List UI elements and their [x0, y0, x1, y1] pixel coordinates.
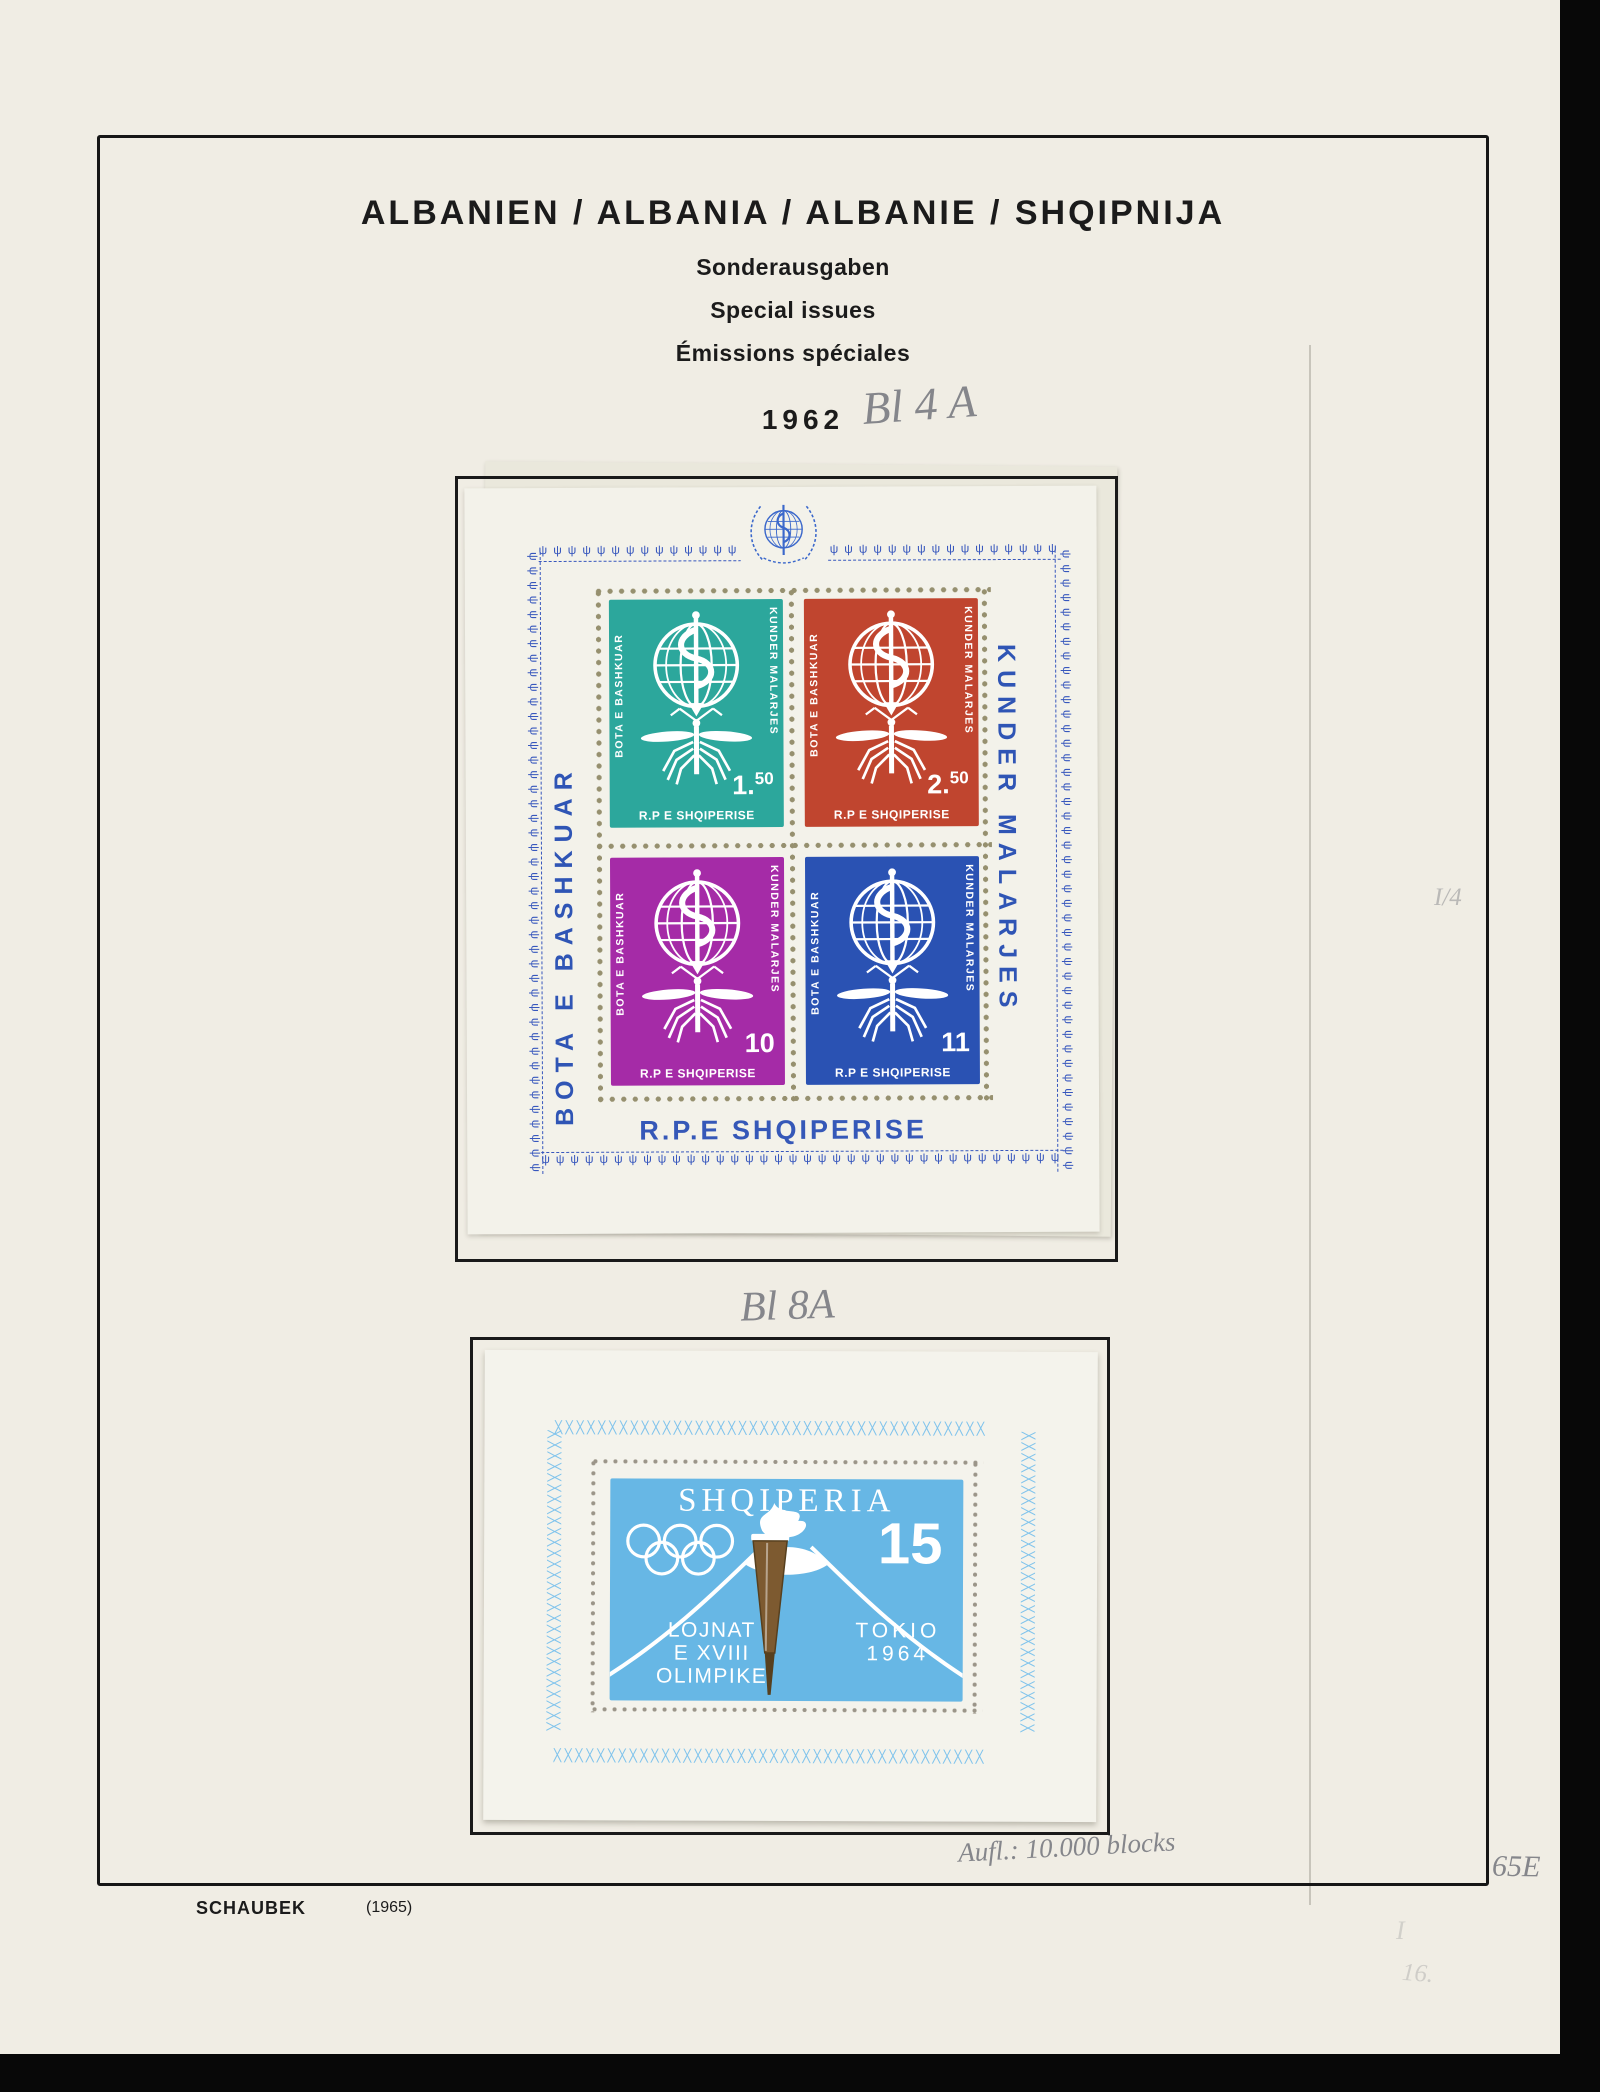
ornament-border-left: ψψψψψψψψψψψψψψψψψψψψψψψψψψψψψψψψψψψψψψψψ…: [523, 552, 544, 1174]
handwritten-margin-mark: I/4: [1434, 884, 1462, 912]
stamp-value: 2.50: [927, 769, 969, 798]
handwritten-block1-note: Bl 4 A: [860, 374, 978, 435]
sheet-margin-bottom-text: R.P.E SHQIPERISE: [467, 1114, 1099, 1148]
stamp-value: 11: [941, 1027, 970, 1056]
stamp-country-text: R.P E SHQIPERISE: [610, 808, 784, 823]
ornament-border-right: ψψψψψψψψψψψψψψψψψψψψψψψψψψψψψψψψψψψψψψψψ…: [1055, 550, 1076, 1172]
album-page: ALBANIEN / ALBANIA / ALBANIE / SHQIPNIJA…: [0, 0, 1600, 2092]
sheet-margin-left-text: BOTA E BASHKUAR: [549, 646, 580, 1126]
stamp-malaria-10: BOTA E BASHKUAR KUNDER MALARJES 10 R.P E…: [610, 857, 785, 1086]
ornament-border-left: ╳╳╳╳╳╳╳╳╳╳╳╳╳╳╳╳╳╳╳╳╳╳╳╳╳╳╳╳: [545, 1430, 561, 1762]
subtitle-german: Sonderausgaben: [97, 254, 1489, 281]
subtitle-french: Émissions spéciales: [97, 340, 1489, 367]
stamp-country-text: R.P E SHQIPERISE: [805, 807, 979, 822]
perforation-column: [590, 1458, 597, 1712]
who-emblem-icon: [740, 495, 826, 575]
page-title: ALBANIEN / ALBANIA / ALBANIE / SHQIPNIJA: [97, 194, 1489, 233]
handwritten-block2-note: Bl 8A: [739, 1280, 835, 1331]
souvenir-sheet-malaria: ψψψψψψψψψψψψψψψψψψψψψψψψψψψψψψψψψψψψψψψψ…: [464, 486, 1099, 1235]
stamp-left-caption: LOJNAT E XVIII OLIMPIKE: [628, 1618, 796, 1688]
malaria-emblem-icon: [624, 865, 771, 1044]
photo-edge-bottom: [0, 2054, 1600, 2092]
perforation-column: [972, 1460, 979, 1714]
perforation-row: [590, 1706, 983, 1713]
stamp-value: 10: [745, 1028, 775, 1057]
malaria-emblem-icon: [819, 864, 966, 1043]
ornament-border-top: ╳╳╳╳╳╳╳╳╳╳╳╳╳╳╳╳╳╳╳╳╳╳╳╳╳╳╳╳╳╳╳╳╳╳╳╳╳╳╳╳: [555, 1420, 1031, 1437]
malaria-emblem-icon: [623, 607, 770, 786]
perforation-column: [981, 586, 990, 1101]
stamp-country-text: R.P E SHQIPERISE: [611, 1066, 785, 1081]
ornament-border-bottom: ╳╳╳╳╳╳╳╳╳╳╳╳╳╳╳╳╳╳╳╳╳╳╳╳╳╳╳╳╳╳╳╳╳╳╳╳╳╳╳╳: [553, 1748, 1029, 1765]
stamp-country-text: R.P E SHQIPERISE: [806, 1065, 980, 1080]
perforation-row: [590, 1458, 983, 1465]
perforation-column: [595, 588, 604, 1103]
handwritten-bottom-mark-2: 16.: [1401, 1959, 1434, 1989]
stamp-malaria-150: BOTA E BASHKUAR KUNDER MALARJES 1.50 R.P…: [609, 599, 784, 828]
stamp-malaria-250: BOTA E BASHKUAR KUNDER MALARJES 2.50 R.P…: [804, 598, 979, 827]
ornament-border-bottom: ψψψψψψψψψψψψψψψψψψψψψψψψψψψψψψψψψψψψψψψψ: [541, 1150, 1063, 1170]
stamp-value: 15: [862, 1515, 958, 1573]
handwritten-bottom-mark-1: I: [1396, 1916, 1405, 1946]
stamp-value: 1.50: [732, 770, 774, 799]
edition-year: (1965): [366, 1899, 412, 1917]
stamp-right-caption: TOKIO 1964: [836, 1619, 960, 1665]
malaria-emblem-icon: [818, 606, 965, 785]
handwritten-corner-code: 65E: [1492, 1850, 1541, 1885]
olympic-rings-icon: [624, 1522, 736, 1576]
stamp-olympics-15: SHQIPERIA 15 LOJNAT E XVIII OLIMPIKE TOK…: [610, 1478, 964, 1701]
publisher-name: SCHAUBEK: [196, 1898, 306, 1919]
perforation-column: [788, 587, 797, 1102]
subtitle-english: Special issues: [97, 297, 1489, 324]
sheet-margin-right-text: KUNDER MALARJES: [991, 644, 1022, 1124]
stamp-malaria-11: BOTA E BASHKUAR KUNDER MALARJES 11 R.P E…: [805, 856, 980, 1085]
photo-edge-right: [1560, 0, 1600, 2092]
ornament-border-right: ╳╳╳╳╳╳╳╳╳╳╳╳╳╳╳╳╳╳╳╳╳╳╳╳╳╳╳╳: [1019, 1432, 1035, 1764]
souvenir-sheet-olympics: ╳╳╳╳╳╳╳╳╳╳╳╳╳╳╳╳╳╳╳╳╳╳╳╳╳╳╳╳╳╳╳╳╳╳╳╳╳╳╳╳…: [483, 1350, 1098, 1822]
